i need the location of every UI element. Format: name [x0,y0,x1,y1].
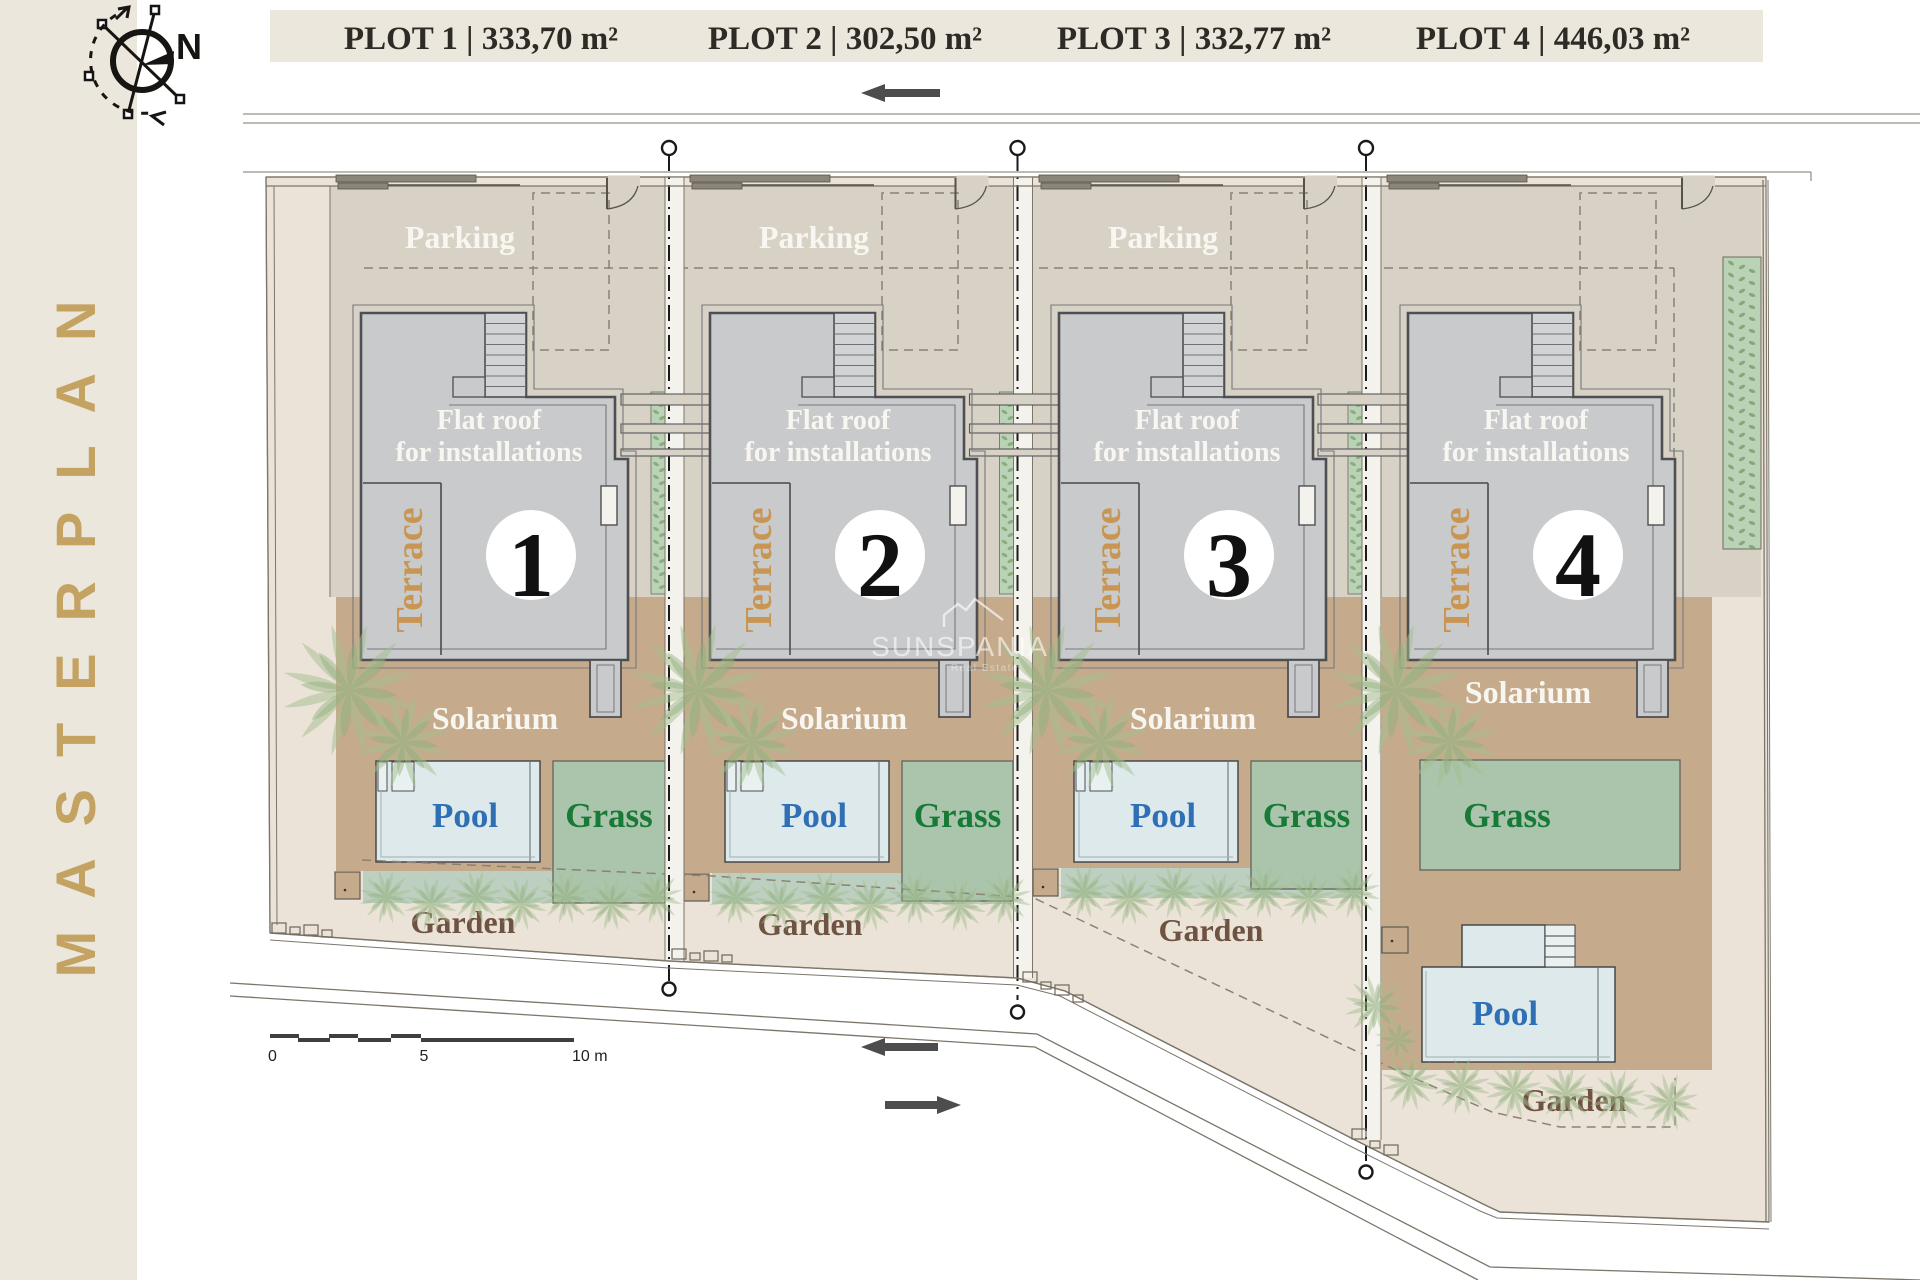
svg-text:Flat roof: Flat roof [786,405,891,436]
svg-text:3: 3 [1206,514,1252,616]
svg-text:Grass: Grass [1463,796,1551,835]
svg-text:0: 0 [268,1048,277,1065]
svg-text:Grass: Grass [1263,796,1351,835]
svg-text:Parking: Parking [759,219,869,255]
svg-text:PLOT 3 | 332,77 m²: PLOT 3 | 332,77 m² [1057,21,1331,57]
svg-text:2: 2 [857,514,903,616]
svg-text:Pool: Pool [1130,796,1196,835]
svg-text:Terrace: Terrace [389,507,431,632]
svg-text:Terrace: Terrace [1436,507,1478,632]
svg-text:Garden: Garden [1159,912,1264,948]
svg-text:Flat roof: Flat roof [437,405,542,436]
svg-text:1: 1 [508,514,554,616]
svg-text:4: 4 [1555,514,1601,616]
svg-text:PLOT 4 | 446,03 m²: PLOT 4 | 446,03 m² [1416,21,1690,57]
svg-text:Solarium: Solarium [1130,700,1257,736]
svg-text:Flat roof: Flat roof [1484,405,1589,436]
svg-text:Real Estate: Real Estate [951,663,1019,674]
svg-text:Solarium: Solarium [432,700,559,736]
svg-text:Pool: Pool [432,796,498,835]
svg-text:Parking: Parking [1108,219,1218,255]
svg-text:PLOT 1 | 333,70 m²: PLOT 1 | 333,70 m² [344,21,618,57]
svg-text:Pool: Pool [781,796,847,835]
svg-text:Terrace: Terrace [1087,507,1129,632]
svg-text:5: 5 [420,1048,429,1065]
svg-text:SUNSPANIA: SUNSPANIA [871,631,1049,662]
svg-text:10 m: 10 m [572,1048,608,1065]
svg-text:N: N [176,26,202,67]
svg-text:PLOT 2 | 302,50 m²: PLOT 2 | 302,50 m² [708,21,982,57]
svg-text:Pool: Pool [1472,994,1538,1033]
svg-text:Grass: Grass [914,796,1002,835]
svg-text:Terrace: Terrace [738,507,780,632]
svg-text:MASTERPLAN: MASTERPLAN [44,269,107,978]
svg-text:for installations: for installations [745,437,932,468]
svg-text:Flat roof: Flat roof [1135,405,1240,436]
svg-text:Solarium: Solarium [781,700,908,736]
svg-text:Grass: Grass [565,796,653,835]
svg-text:Solarium: Solarium [1465,674,1592,710]
svg-text:Parking: Parking [405,219,515,255]
svg-text:for installations: for installations [1094,437,1281,468]
svg-text:for installations: for installations [1443,437,1630,468]
svg-text:for installations: for installations [396,437,583,468]
